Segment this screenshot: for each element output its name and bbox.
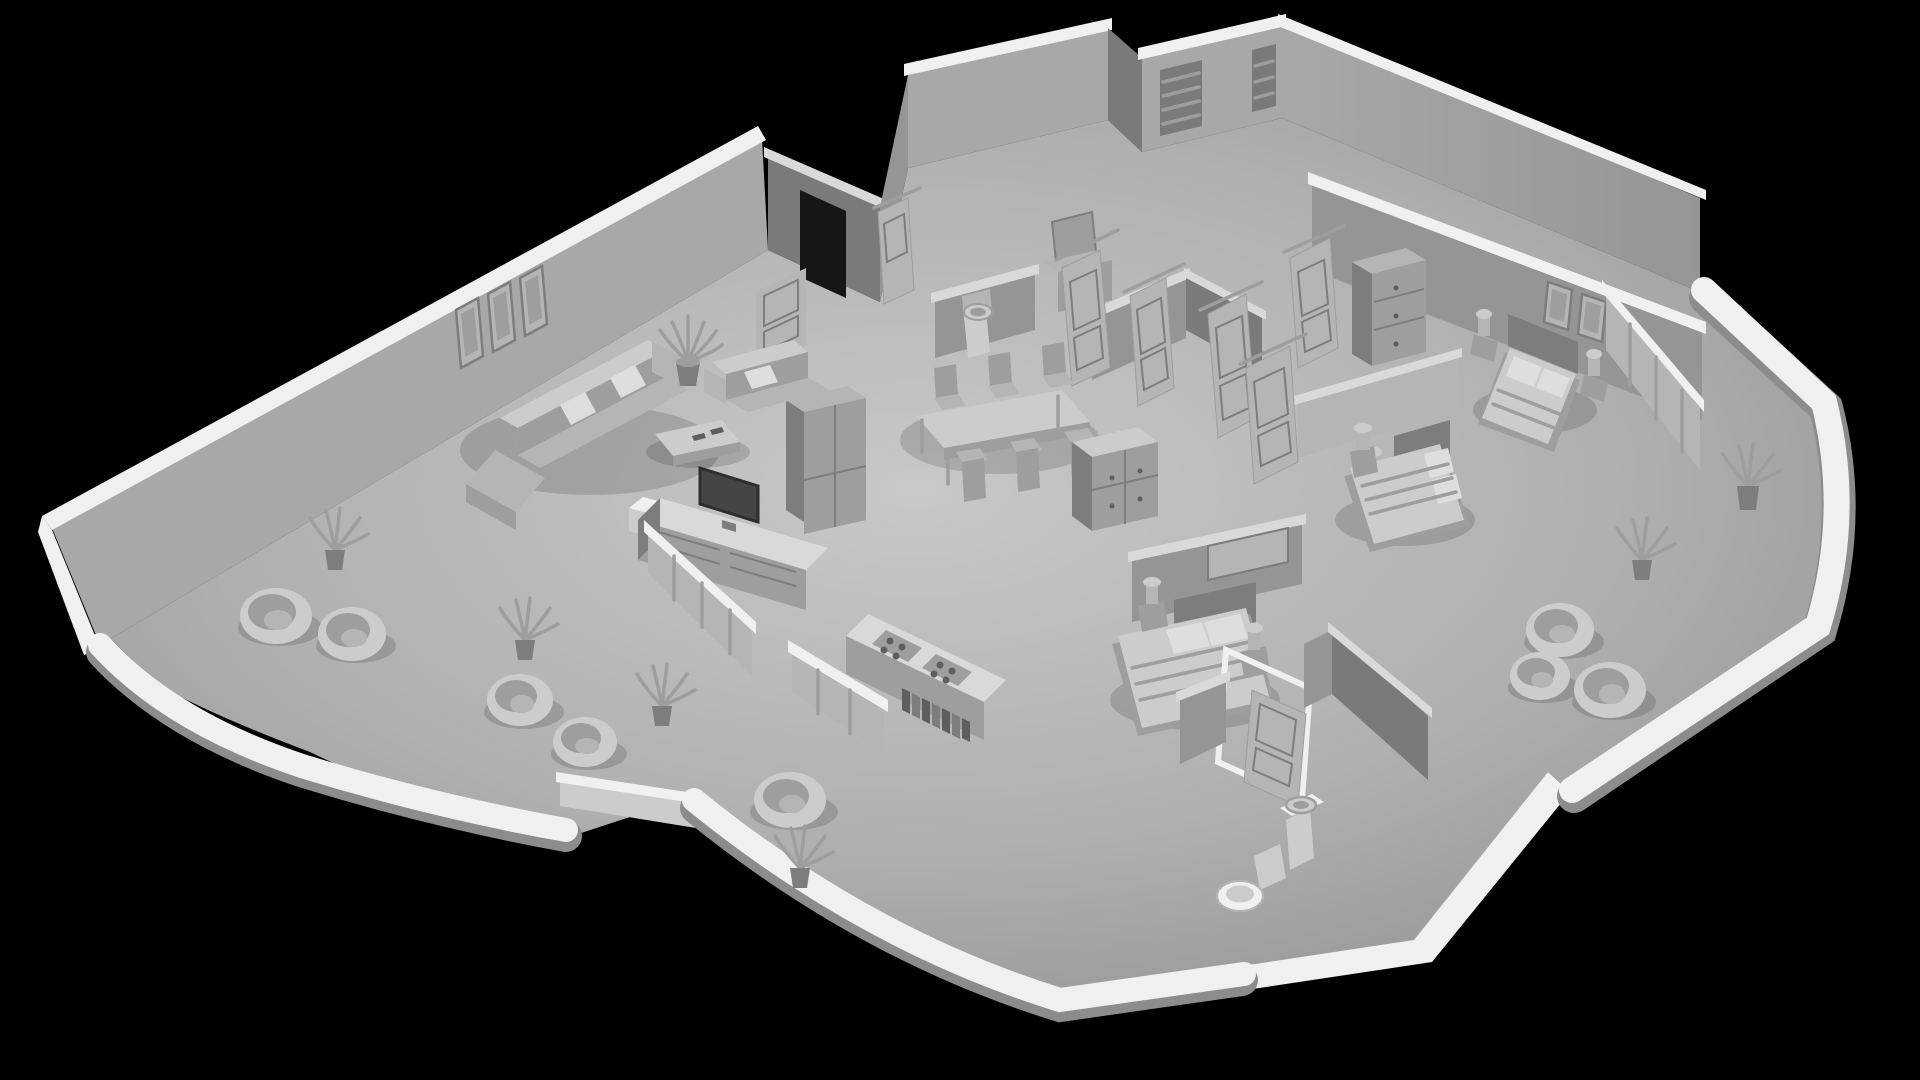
slatted-window xyxy=(1160,60,1202,136)
low-cabinet xyxy=(1072,427,1158,531)
floorplan-render xyxy=(0,0,1920,1080)
render-viewport: Grayscale 3D cutaway floor plan render o… xyxy=(0,0,1920,1080)
tall-wardrobe xyxy=(1352,248,1426,366)
fridge-cabinet xyxy=(786,386,866,534)
small-window xyxy=(1252,44,1276,112)
